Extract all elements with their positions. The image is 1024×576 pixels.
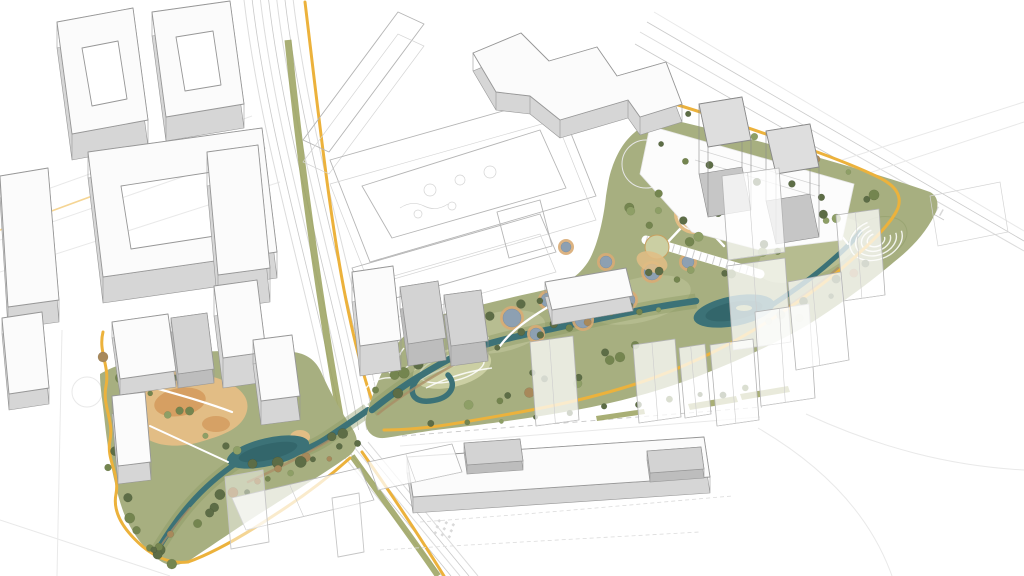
ghost-tower-s3 xyxy=(679,344,711,418)
ghost-tower-s1 xyxy=(530,336,579,426)
tree xyxy=(584,319,591,326)
north-tower-roof xyxy=(352,266,401,346)
tree xyxy=(203,433,209,439)
paver-hatch xyxy=(442,527,446,531)
tree xyxy=(124,493,133,502)
property-dashed-line xyxy=(380,532,700,550)
sand-patch xyxy=(202,416,230,432)
mid-slab-gray xyxy=(171,313,214,388)
slab-rooftop-2-roof xyxy=(647,447,704,473)
tree xyxy=(537,332,544,339)
wireframe-tower xyxy=(497,200,552,258)
north-slab-gray-1-roof xyxy=(400,281,446,344)
tree xyxy=(685,237,694,246)
tree xyxy=(788,180,795,187)
tree xyxy=(164,411,171,418)
tree xyxy=(105,464,112,471)
north-slab-gray-1 xyxy=(400,281,446,366)
tree xyxy=(338,428,348,438)
north-slab-gray-2-roof xyxy=(444,290,488,346)
context-slab-west-roof xyxy=(0,168,59,307)
tree xyxy=(148,391,153,396)
tree xyxy=(524,388,534,398)
tree xyxy=(222,443,229,450)
ghost-tower-s4 xyxy=(710,339,759,426)
tree xyxy=(98,352,108,362)
ghost-tower-ne-volume xyxy=(722,168,785,260)
tree xyxy=(193,519,202,528)
ghost-tower-s3-volume xyxy=(679,344,711,418)
tree xyxy=(275,465,282,472)
tree xyxy=(485,312,494,321)
park-pavilion-west-roof xyxy=(112,392,151,466)
tree xyxy=(646,222,653,229)
tree xyxy=(685,111,691,117)
tree xyxy=(516,300,525,309)
paver-hatch xyxy=(437,519,441,523)
courtyard-tree-outline xyxy=(424,184,436,196)
tree xyxy=(428,420,435,427)
tree xyxy=(310,457,316,463)
gray-tower-2-roof xyxy=(766,124,819,174)
mid-tower-2-roof xyxy=(253,335,300,401)
courtyard-block-nw2 xyxy=(152,1,244,141)
tree xyxy=(655,267,663,275)
ghost-tower-e xyxy=(836,209,885,301)
tree xyxy=(846,169,851,174)
tree xyxy=(176,407,184,415)
paver-hatch xyxy=(449,529,453,533)
tree xyxy=(655,190,663,198)
tree xyxy=(167,531,174,538)
tree xyxy=(537,298,543,304)
ghost-tower-ne xyxy=(722,168,785,260)
courtyard-path-outline xyxy=(400,203,448,208)
tree xyxy=(125,513,135,523)
sw-curve-line xyxy=(806,414,1024,470)
outline-building-sw1 xyxy=(225,470,269,549)
tree xyxy=(185,407,194,416)
outline-building-sw2 xyxy=(332,493,364,557)
tree xyxy=(393,388,403,398)
tree xyxy=(248,459,257,468)
paver-hatch xyxy=(433,531,437,535)
tree xyxy=(819,210,828,219)
street-median-strip xyxy=(596,409,645,421)
tree xyxy=(372,387,379,394)
mid-tower-2 xyxy=(253,335,300,425)
tree xyxy=(566,324,573,331)
ghost-tower-e-volume xyxy=(836,209,885,301)
context-slab-west-2 xyxy=(2,312,49,410)
tree xyxy=(615,352,625,362)
tree xyxy=(495,345,501,351)
pool xyxy=(561,242,571,252)
ghost-tower-s4-volume xyxy=(710,339,759,426)
tree xyxy=(645,269,652,276)
tree xyxy=(656,307,661,312)
zigzag-slab xyxy=(473,33,682,138)
tree xyxy=(265,476,270,481)
mid-slab-roof xyxy=(112,314,176,379)
context-slab-west-2-roof xyxy=(2,312,49,394)
tree xyxy=(626,207,635,216)
tree xyxy=(674,277,680,283)
outline-parcel-ne xyxy=(930,182,1008,246)
mid-slab xyxy=(112,314,176,395)
tree xyxy=(205,509,214,518)
north-slab-gray-2 xyxy=(444,290,488,366)
tree xyxy=(295,456,306,467)
tree xyxy=(499,419,503,423)
pool xyxy=(600,256,612,268)
paver-hatch xyxy=(451,523,455,527)
courtyard-tree-outline xyxy=(414,210,422,218)
tree xyxy=(751,133,758,140)
tree xyxy=(518,328,525,335)
context-slab-west xyxy=(0,168,59,329)
tree xyxy=(327,456,332,461)
ne-street-line xyxy=(854,122,1024,178)
park-pavilion-west xyxy=(112,392,151,484)
tree xyxy=(167,559,177,569)
courtyard-block-nw2-roof xyxy=(152,1,244,117)
courtyard-block-nw1-roof xyxy=(57,8,148,134)
tree xyxy=(464,400,473,409)
tree xyxy=(706,161,714,169)
tree xyxy=(505,392,511,398)
tree xyxy=(601,349,609,357)
paver-hatch xyxy=(447,535,451,539)
ghost-tower-s6-volume xyxy=(788,272,849,370)
tree xyxy=(465,420,470,425)
masterplan-canvas xyxy=(0,0,1024,576)
slab-rooftop-2 xyxy=(647,447,704,482)
tree xyxy=(687,266,694,273)
gray-tower-1-roof xyxy=(699,97,751,147)
courtyard-block-nw1 xyxy=(57,8,148,160)
tree xyxy=(601,403,607,409)
mid-slab-gray-roof xyxy=(171,313,214,374)
north-tower xyxy=(352,266,401,376)
slab-rooftop-1-roof xyxy=(464,439,523,465)
tree xyxy=(233,446,241,454)
tree xyxy=(869,190,879,200)
tree xyxy=(605,356,614,365)
tree xyxy=(679,217,687,225)
tree xyxy=(694,232,704,242)
tree xyxy=(288,470,294,476)
courtyard-tree-outline xyxy=(455,175,465,185)
tree xyxy=(682,158,688,164)
ghost-tower-s6 xyxy=(788,272,849,370)
tree xyxy=(133,526,141,534)
tree xyxy=(655,207,662,214)
tree xyxy=(497,398,503,404)
tree xyxy=(336,443,342,449)
ghost-tower-s2 xyxy=(633,339,681,423)
tree xyxy=(151,547,157,553)
tree xyxy=(327,432,336,441)
masterplan-rendering xyxy=(0,0,1024,576)
courtyard-tree-outline xyxy=(448,202,456,210)
tree xyxy=(636,309,642,315)
tree xyxy=(354,440,361,447)
tree xyxy=(215,489,225,499)
paver-hatch xyxy=(444,521,448,525)
pavement-circle xyxy=(72,377,102,407)
pool xyxy=(503,309,521,327)
tree xyxy=(658,141,663,146)
wireframe-bar-extrusion xyxy=(303,34,424,174)
wireframe-district xyxy=(303,12,596,326)
courtyard-tree-outline xyxy=(484,166,496,178)
sw-curve-line xyxy=(758,428,892,576)
slab-rooftop-1 xyxy=(464,439,523,474)
